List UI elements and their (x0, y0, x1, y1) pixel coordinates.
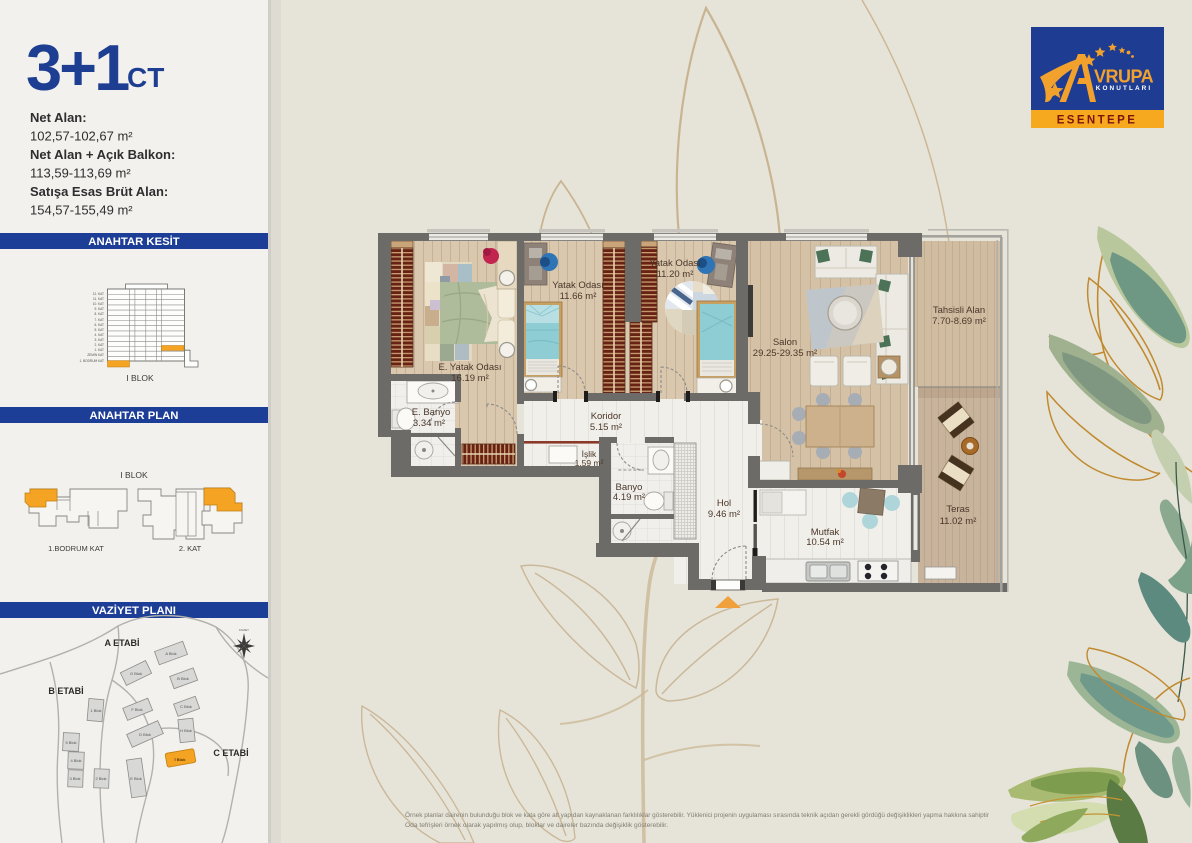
svg-text:İ Blok: İ Blok (175, 757, 187, 762)
svg-text:E. Banyo: E. Banyo (412, 407, 451, 418)
svg-text:1. KAT: 1. KAT (94, 348, 104, 352)
svg-text:10.54 m²: 10.54 m² (806, 537, 844, 548)
svg-text:KONUTLARI: KONUTLARI (1096, 85, 1153, 92)
svg-text:B Blok: B Blok (177, 676, 189, 681)
svg-text:16.19 m²: 16.19 m² (451, 373, 489, 384)
svg-text:10. KAT: 10. KAT (93, 302, 104, 306)
svg-text:5. KAT: 5. KAT (94, 328, 104, 332)
svg-text:3. KAT: 3. KAT (94, 338, 104, 342)
svg-text:5.15 m²: 5.15 m² (590, 422, 622, 433)
svg-text:H Blok: H Blok (180, 728, 192, 733)
svg-text:C ETABİ: C ETABİ (213, 748, 248, 758)
svg-text:ZEMİN KAT: ZEMİN KAT (87, 352, 104, 357)
svg-text:A Blok: A Blok (165, 651, 176, 656)
svg-text:B ETABİ: B ETABİ (48, 686, 83, 696)
svg-text:1.59 m²: 1.59 m² (575, 458, 604, 468)
svg-text:KUZEY: KUZEY (239, 628, 249, 632)
svg-text:Koridor: Koridor (591, 411, 622, 422)
svg-text:Satışa Esas Brüt Alan:: Satışa Esas Brüt Alan: (30, 184, 168, 199)
svg-text:ANAHTAR KESİT: ANAHTAR KESİT (88, 235, 180, 248)
svg-text:7.70-8.69 m²: 7.70-8.69 m² (932, 316, 986, 327)
svg-text:8. KAT: 8. KAT (94, 312, 104, 316)
svg-text:3+1: 3+1 (26, 31, 129, 104)
svg-text:Net Alan:: Net Alan: (30, 110, 87, 125)
svg-text:CT: CT (127, 62, 164, 93)
svg-text:ESENTEPE: ESENTEPE (1057, 115, 1138, 127)
svg-text:Net Alan + Açık Balkon:: Net Alan + Açık Balkon: (30, 147, 175, 162)
svg-text:4 Blok: 4 Blok (70, 758, 81, 763)
svg-text:29.25-29.35 m²: 29.25-29.35 m² (753, 348, 817, 359)
svg-text:6. KAT: 6. KAT (94, 323, 104, 327)
svg-text:3.34 m²: 3.34 m² (413, 418, 445, 429)
svg-text:11. KAT: 11. KAT (93, 297, 104, 301)
svg-text:154,57-155,49 m²: 154,57-155,49 m² (30, 203, 133, 218)
svg-text:9. KAT: 9. KAT (94, 307, 104, 311)
svg-text:4. KAT: 4. KAT (94, 333, 104, 337)
svg-text:Örnek planlar dairenin bulundu: Örnek planlar dairenin bulunduğu blok ve… (405, 812, 989, 819)
svg-text:2. KAT: 2. KAT (179, 544, 202, 553)
svg-text:5 Blok: 5 Blok (65, 740, 76, 745)
svg-text:11.20 m²: 11.20 m² (657, 269, 694, 280)
svg-text:Salon: Salon (773, 337, 797, 348)
svg-text:1.BODRUM KAT: 1.BODRUM KAT (48, 544, 104, 553)
svg-text:3 Blok: 3 Blok (69, 776, 80, 781)
svg-text:G Blok: G Blok (130, 671, 142, 676)
svg-text:Yatak Odası: Yatak Odası (552, 280, 604, 291)
svg-text:9.46 m²: 9.46 m² (708, 509, 740, 520)
svg-text:F Blok: F Blok (131, 707, 142, 712)
svg-text:12. KAT: 12. KAT (93, 292, 104, 296)
svg-text:11.02 m²: 11.02 m² (940, 516, 977, 527)
svg-text:1. BODRUM KAT: 1. BODRUM KAT (79, 359, 104, 363)
svg-text:Teras: Teras (946, 504, 969, 515)
svg-text:2 Blok: 2 Blok (95, 776, 106, 781)
svg-text:102,57-102,67 m²: 102,57-102,67 m² (30, 129, 133, 144)
svg-text:4.19 m²: 4.19 m² (613, 492, 645, 503)
svg-text:Oda tefrişleri örnek olarak ya: Oda tefrişleri örnek olarak yapılmış olu… (405, 822, 668, 829)
svg-text:C Blok: C Blok (180, 704, 192, 709)
svg-text:Yatak Odası: Yatak Odası (649, 258, 701, 269)
svg-text:D Blok: D Blok (139, 732, 151, 737)
svg-text:Hol: Hol (717, 498, 731, 509)
svg-text:2. KAT: 2. KAT (94, 343, 104, 347)
svg-text:7. KAT: 7. KAT (94, 318, 104, 322)
svg-text:ANAHTAR PLAN: ANAHTAR PLAN (90, 410, 179, 422)
svg-text:Tahsisli Alan: Tahsisli Alan (933, 305, 985, 316)
svg-text:A ETABİ: A ETABİ (105, 638, 140, 648)
svg-text:E. Yatak Odası: E. Yatak Odası (438, 362, 501, 373)
svg-text:I BLOK: I BLOK (120, 470, 148, 480)
svg-text:E Blok: E Blok (130, 776, 142, 781)
svg-text:VRUPA: VRUPA (1094, 67, 1154, 87)
svg-text:1 Blok: 1 Blok (90, 708, 101, 713)
svg-text:113,59-113,69 m²: 113,59-113,69 m² (30, 166, 131, 181)
svg-text:11.66 m²: 11.66 m² (560, 291, 597, 302)
svg-text:I BLOK: I BLOK (126, 373, 154, 383)
